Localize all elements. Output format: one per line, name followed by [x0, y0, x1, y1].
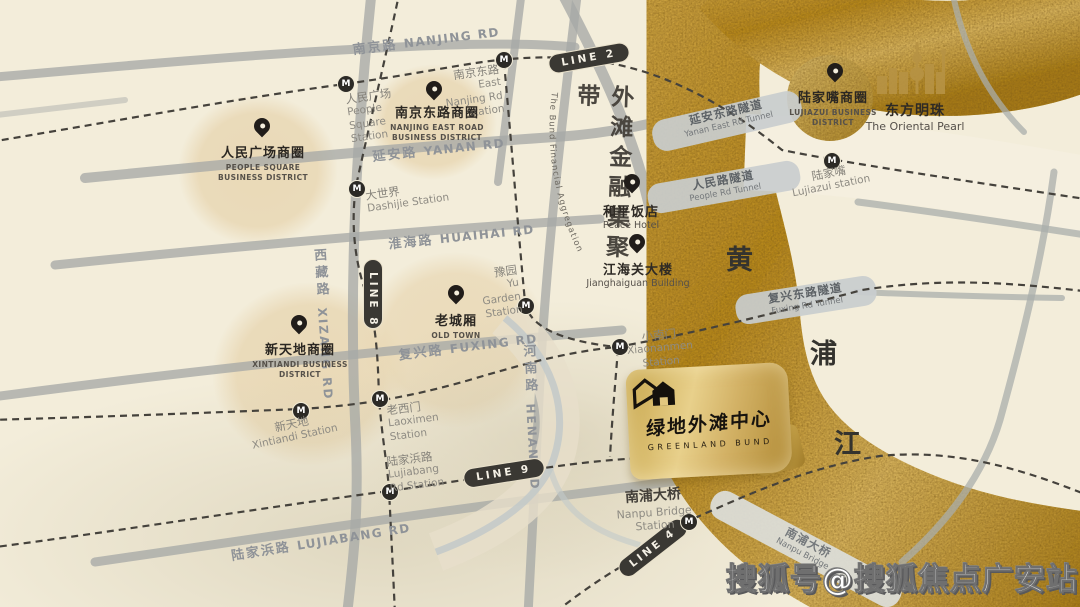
- station-laoximen: 老西门 Laoximen Station: [386, 397, 447, 444]
- station-nanpu-bridge: 南浦大桥 Nanpu Bridge Station: [605, 485, 704, 537]
- station-lujiabang-rd: 陆家浜路 Lujiabang Rd Station: [386, 447, 452, 495]
- poi-peace-hotel: 和平饭店 Peace Hotel: [581, 201, 681, 231]
- district-people-square: 人民广场商圈 PEOPLE SQUARE BUSINESS DISTRICT: [205, 142, 321, 183]
- greenland-logo-icon: [625, 372, 685, 411]
- station-xiaonanmen: 小南门 Xiaonanmen Station: [623, 325, 696, 372]
- location-map: The Bund Financial Aggregation Belt 南京路 …: [0, 0, 1080, 607]
- district-nanjing-east: 南京东路商圈 NANJING EAST ROAD BUSINESS DISTRI…: [379, 102, 495, 143]
- poi-jianghaiguan: 江海关大楼 Jianghaiguan Building: [573, 259, 703, 289]
- district-xintiandi: 新天地商圈 XINTIANDI BUSINESS DISTRICT: [242, 339, 358, 380]
- metro-icon-people-square: M: [337, 75, 355, 93]
- metro-icon-dashijie: M: [348, 180, 366, 198]
- river-char-jiang: 江: [834, 422, 861, 461]
- greenland-bund-plaque: 绿地外滩中心 GREENLAND BUND: [625, 362, 793, 480]
- sohu-watermark: 搜狐号@搜狐焦点广安站: [726, 554, 1078, 599]
- map-artwork: The Bund Financial Aggregation Belt: [0, 0, 1080, 607]
- line-8-badge: LINE 8: [363, 259, 383, 329]
- district-old-town: 老城厢 OLD TOWN: [406, 310, 506, 341]
- river-char-huang: 黄: [726, 238, 753, 277]
- landmark-oriental-pearl: 东方明珠 The Oriental Pearl: [853, 100, 977, 133]
- river-char-pu: 浦: [810, 332, 837, 371]
